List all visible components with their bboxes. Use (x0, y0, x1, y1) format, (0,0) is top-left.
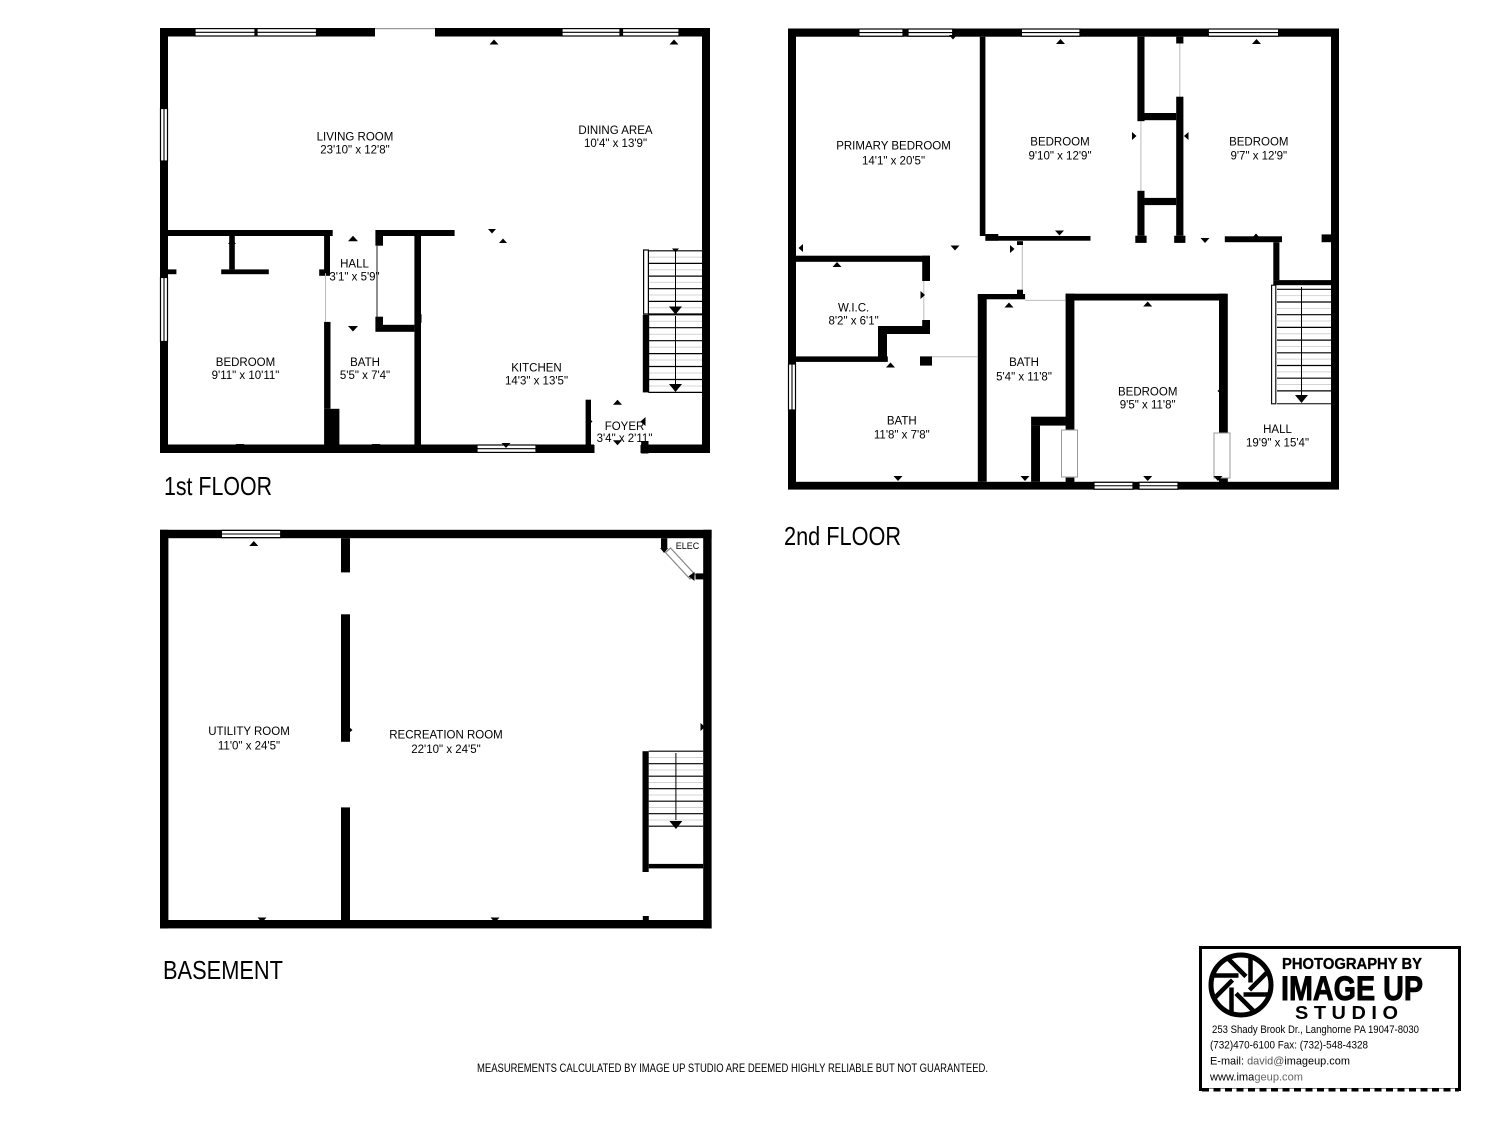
svg-text:1st FLOOR: 1st FLOOR (164, 471, 272, 501)
svg-text:10'4" x 13'9": 10'4" x 13'9" (584, 138, 647, 150)
svg-text:9'10" x 12'9": 9'10" x 12'9" (1028, 151, 1091, 163)
svg-text:3'4" x 2'11": 3'4" x 2'11" (597, 433, 653, 445)
svg-text:KITCHEN: KITCHEN (511, 363, 561, 375)
svg-text:9'5" x 11'8": 9'5" x 11'8" (1120, 400, 1176, 412)
svg-text:2nd FLOOR: 2nd FLOOR (784, 521, 901, 551)
svg-text:BASEMENT: BASEMENT (163, 955, 283, 985)
svg-text:BEDROOM: BEDROOM (1229, 137, 1288, 149)
svg-text:23'10" x 12'8": 23'10" x 12'8" (320, 145, 389, 157)
svg-text:FOYER: FOYER (605, 421, 645, 433)
svg-text:RECREATION ROOM: RECREATION ROOM (389, 730, 503, 742)
svg-text:5'5" x 7'4": 5'5" x 7'4" (340, 370, 390, 382)
svg-text:3'1" x 5'9": 3'1" x 5'9" (329, 272, 379, 284)
svg-text:MEASUREMENTS CALCULATED BY IMA: MEASUREMENTS CALCULATED BY IMAGE UP STUD… (477, 1061, 988, 1075)
svg-text:DINING AREA: DINING AREA (578, 125, 652, 137)
svg-text:BEDROOM: BEDROOM (216, 357, 275, 369)
svg-text:9'11" x 10'11": 9'11" x 10'11" (212, 370, 280, 382)
svg-text:5'4" x 11'8": 5'4" x 11'8" (996, 372, 1052, 384)
svg-text:8'2" x 6'1": 8'2" x 6'1" (828, 316, 878, 328)
svg-text:9'7" x 12'9": 9'7" x 12'9" (1230, 151, 1287, 163)
svg-text:11'8" x 7'8": 11'8" x 7'8" (874, 430, 930, 442)
svg-text:14'1" x 20'5": 14'1" x 20'5" (862, 156, 925, 168)
svg-text:(732)470-6100 Fax: (732)-548-4: (732)470-6100 Fax: (732)-548-4328 (1210, 1040, 1368, 1052)
svg-text:19'9" x 15'4": 19'9" x 15'4" (1246, 438, 1309, 450)
svg-text:BATH: BATH (1009, 357, 1039, 369)
svg-text:BEDROOM: BEDROOM (1118, 387, 1177, 399)
svg-text:BATH: BATH (887, 416, 917, 428)
svg-text:HALL: HALL (1263, 424, 1292, 436)
svg-text:S T U D I O: S T U D I O (1295, 1003, 1398, 1023)
svg-text:E-mail: david@imageup.com: E-mail: david@imageup.com (1210, 1056, 1350, 1068)
svg-text:PRIMARY BEDROOM: PRIMARY BEDROOM (836, 141, 951, 153)
svg-text:BEDROOM: BEDROOM (1030, 137, 1089, 149)
svg-text:W.I.C.: W.I.C. (838, 303, 869, 315)
svg-text:14'3" x 13'5": 14'3" x 13'5" (505, 376, 568, 388)
svg-text:22'10" x 24'5": 22'10" x 24'5" (411, 744, 480, 756)
svg-text:253 Shady Brook Dr., Langhorne: 253 Shady Brook Dr., Langhorne PA 19047-… (1212, 1024, 1419, 1036)
svg-text:UTILITY ROOM: UTILITY ROOM (208, 726, 290, 738)
svg-text:11'0" x 24'5": 11'0" x 24'5" (218, 741, 280, 753)
svg-text:LIVING ROOM: LIVING ROOM (317, 132, 394, 144)
svg-text:www.imageup.com: www.imageup.com (1209, 1072, 1303, 1084)
svg-text:ELEC: ELEC (676, 541, 700, 551)
svg-text:HALL: HALL (340, 259, 369, 271)
svg-text:BATH: BATH (350, 357, 380, 369)
